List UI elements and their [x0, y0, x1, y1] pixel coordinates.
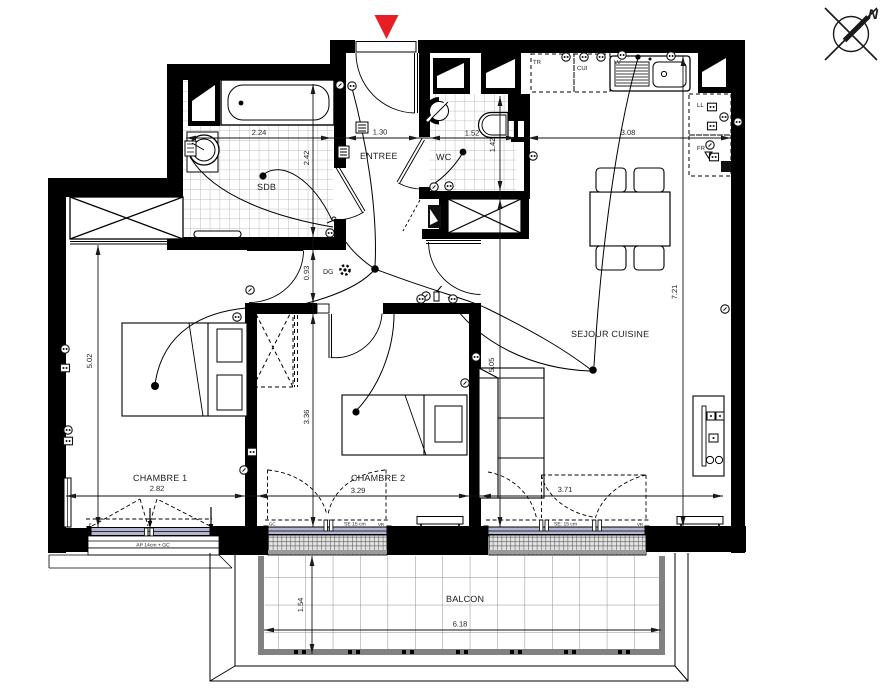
- svg-text:AP 14cm + GC: AP 14cm + GC: [136, 542, 170, 548]
- svg-text:VR: VR: [378, 522, 384, 527]
- svg-text:LV: LV: [614, 59, 621, 66]
- svg-text:CHAMBRE 1: CHAMBRE 1: [133, 473, 187, 483]
- svg-text:FR: FR: [697, 145, 706, 152]
- svg-text:SE 15 cm: SE 15 cm: [344, 522, 366, 528]
- svg-text:TR: TR: [533, 59, 542, 66]
- svg-text:5.05: 5.05: [487, 358, 496, 373]
- svg-text:ENTREE: ENTREE: [360, 151, 398, 161]
- svg-text:7.21: 7.21: [670, 285, 679, 300]
- svg-text:CUI: CUI: [577, 65, 588, 72]
- svg-text:SE: 15 cm: SE: 15 cm: [554, 522, 577, 528]
- svg-text:CHAMBRE 2: CHAMBRE 2: [351, 473, 405, 483]
- svg-text:F: F: [89, 522, 92, 527]
- svg-text:2.24: 2.24: [252, 128, 267, 137]
- svg-text:VR: VR: [637, 522, 643, 527]
- svg-text:3.29: 3.29: [351, 486, 366, 495]
- svg-text:1.54: 1.54: [296, 598, 305, 613]
- svg-text:2.42: 2.42: [302, 151, 311, 166]
- svg-text:LL: LL: [697, 102, 704, 109]
- svg-text:N: N: [868, 6, 879, 22]
- svg-text:WC: WC: [436, 152, 452, 162]
- svg-text:5.02: 5.02: [85, 354, 94, 369]
- svg-text:1.52: 1.52: [465, 128, 480, 137]
- svg-text:GC: GC: [269, 522, 276, 527]
- svg-text:DG: DG: [323, 269, 334, 276]
- svg-text:SEJOUR CUISINE: SEJOUR CUISINE: [571, 329, 649, 339]
- svg-text:3.71: 3.71: [558, 485, 573, 494]
- svg-text:0.93: 0.93: [302, 266, 311, 281]
- svg-text:6.18: 6.18: [453, 619, 468, 628]
- svg-text:3.36: 3.36: [302, 410, 311, 425]
- svg-text:3.08: 3.08: [621, 128, 636, 137]
- svg-text:SDB: SDB: [257, 182, 276, 192]
- svg-text:1.42: 1.42: [488, 138, 497, 153]
- svg-text:BALCON: BALCON: [446, 594, 484, 604]
- svg-text:1.30: 1.30: [373, 127, 388, 136]
- svg-text:2.82: 2.82: [150, 484, 165, 493]
